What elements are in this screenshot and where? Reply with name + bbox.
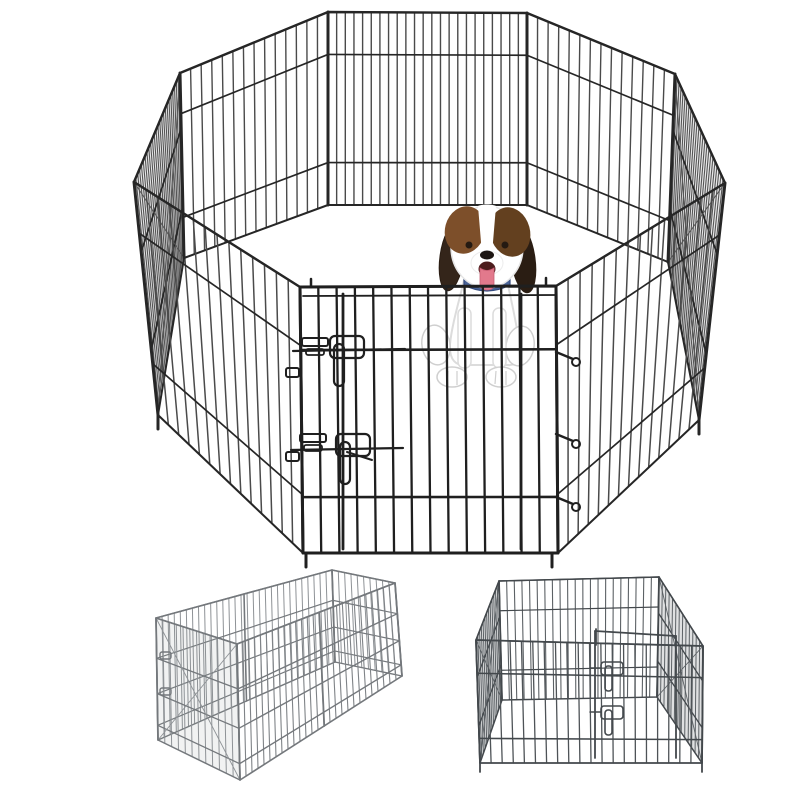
dog-foreleg-right bbox=[493, 308, 506, 368]
dog-nose bbox=[480, 251, 494, 260]
product-photo bbox=[0, 0, 800, 800]
product-photo-canvas bbox=[0, 0, 800, 800]
dog-eye-right bbox=[502, 242, 509, 249]
dog-paw-left bbox=[437, 367, 467, 387]
gate-panel bbox=[286, 278, 580, 567]
gate-latches bbox=[291, 336, 405, 484]
octagon-pen-view bbox=[134, 12, 725, 567]
pen-back-panels bbox=[180, 12, 675, 262]
rectangle-pen-view bbox=[156, 570, 402, 780]
dog-eye-left bbox=[466, 242, 473, 249]
square-pen-view bbox=[476, 577, 703, 772]
dog-head bbox=[435, 202, 539, 295]
